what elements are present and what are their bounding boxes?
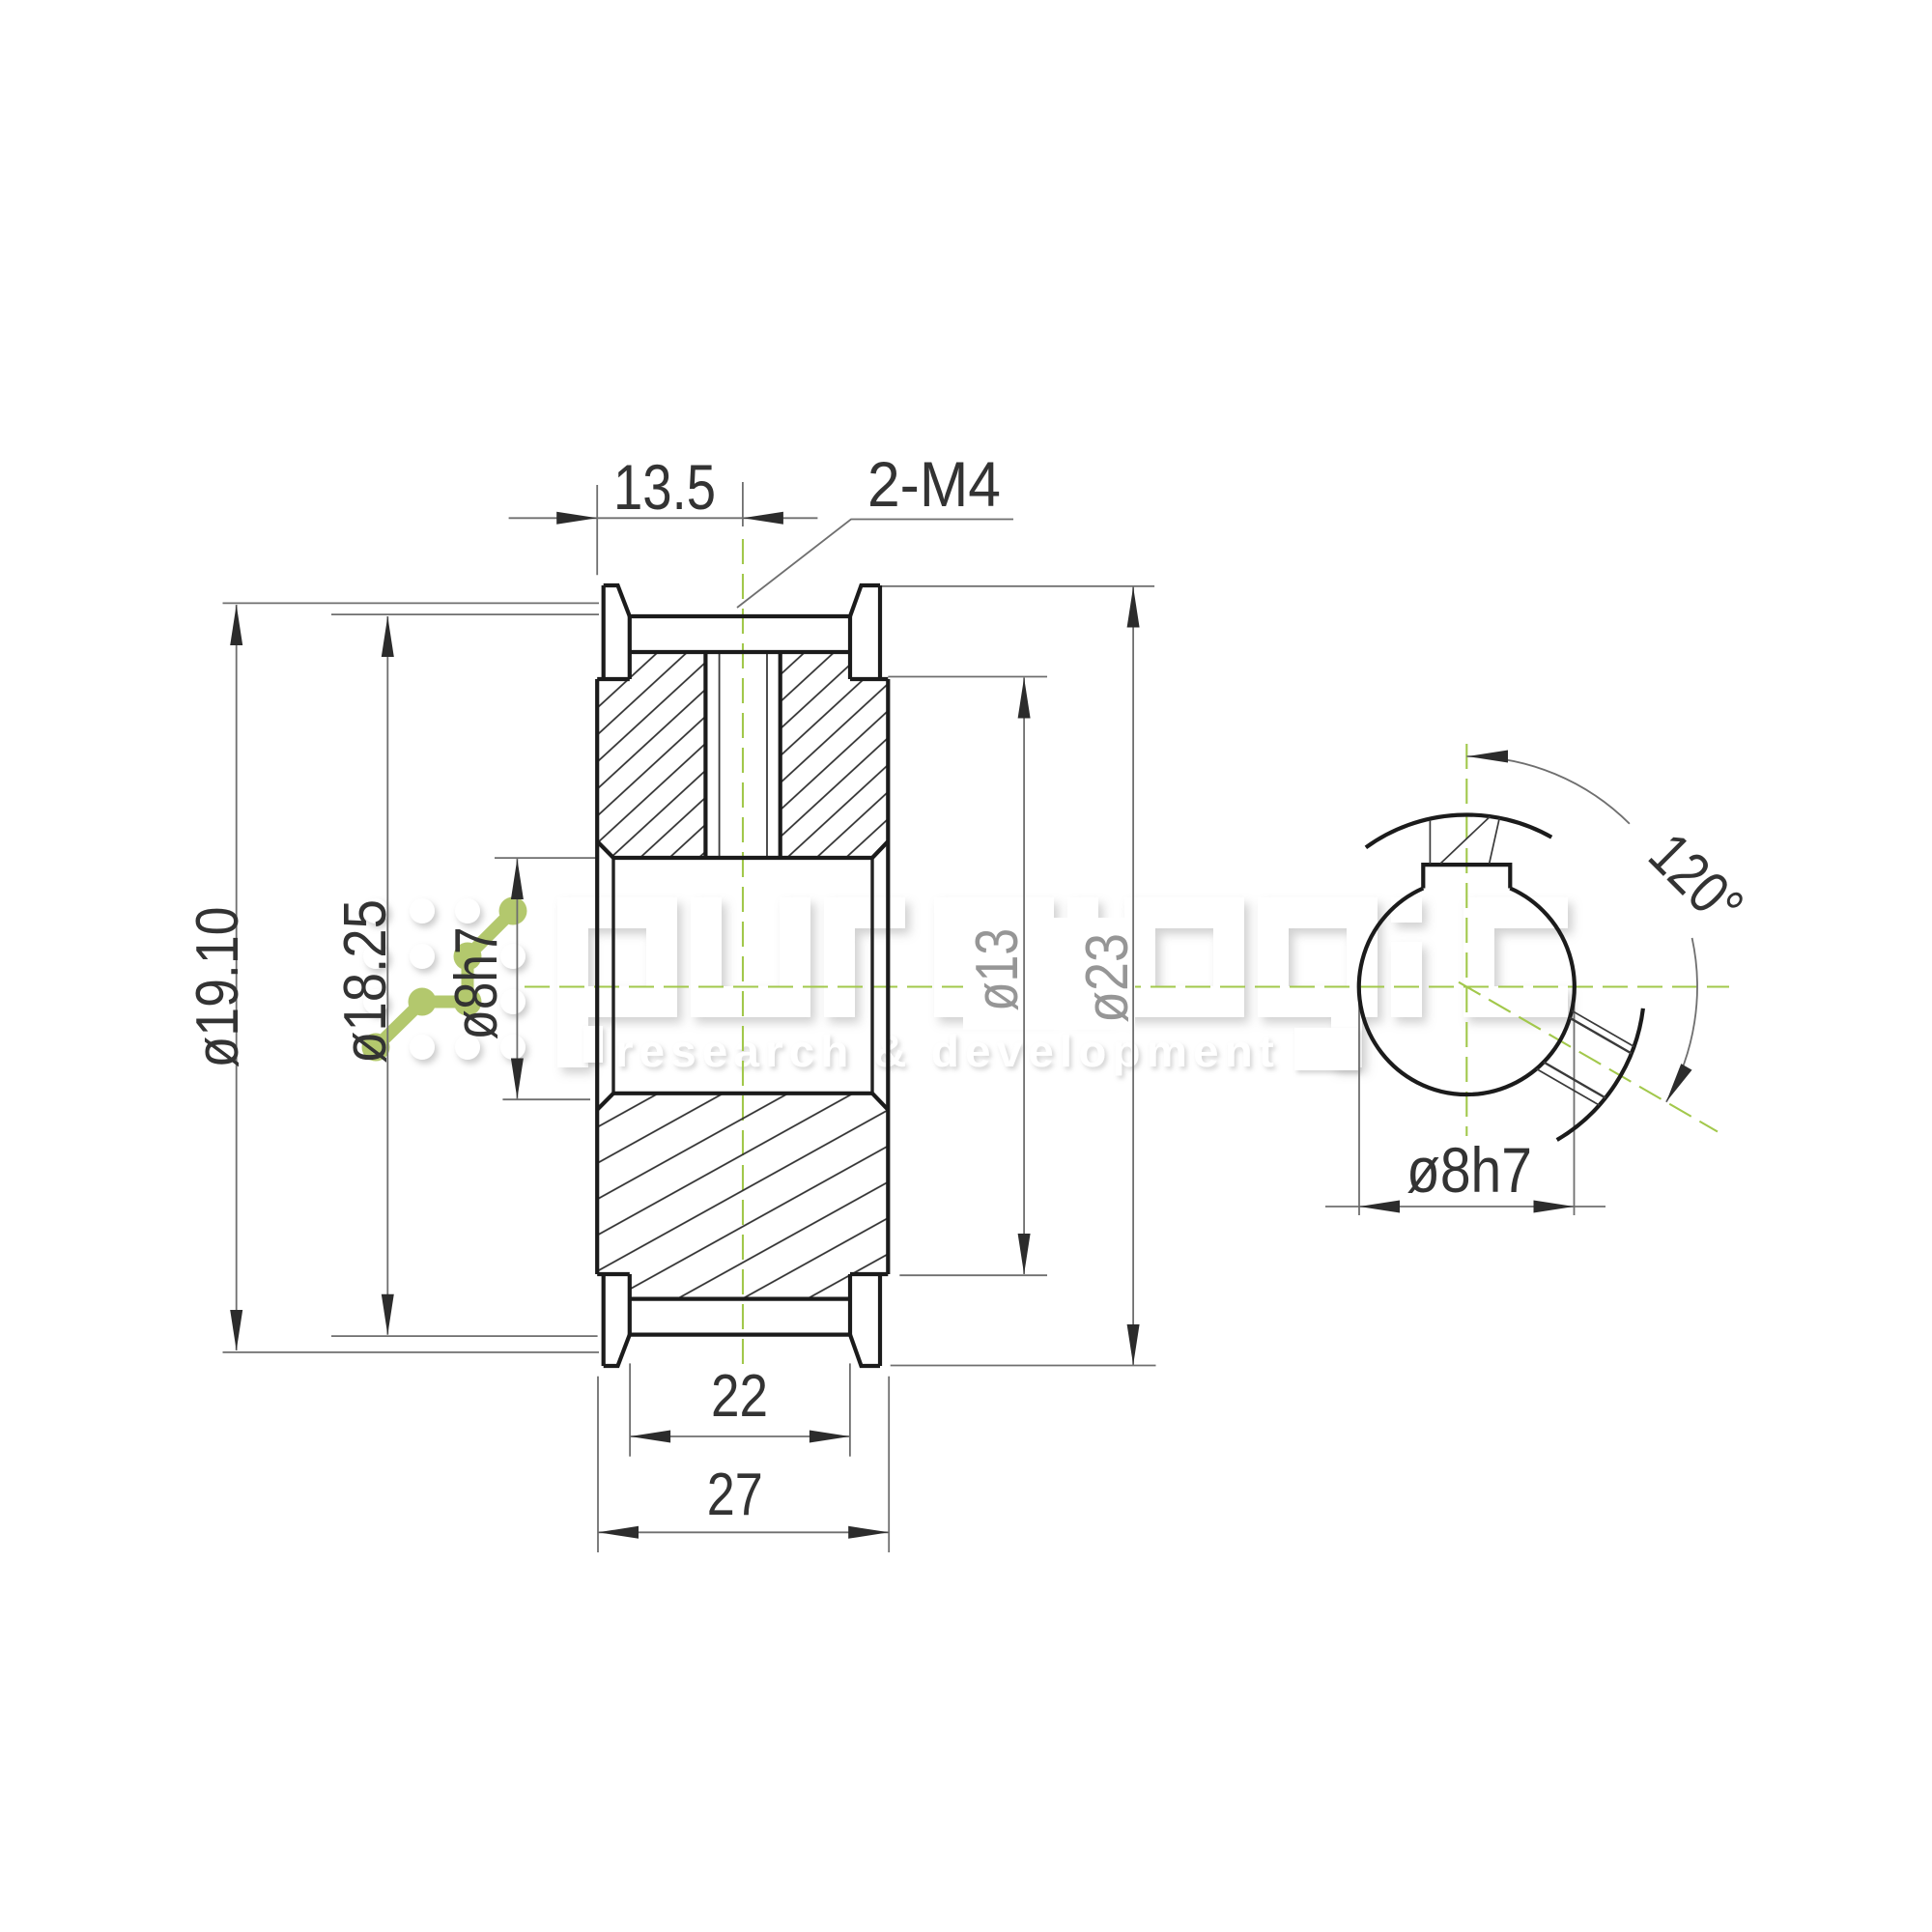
- svg-text:22: 22: [711, 1363, 768, 1430]
- svg-text:13.5: 13.5: [613, 451, 716, 523]
- svg-text:ø18.25: ø18.25: [332, 899, 399, 1064]
- svg-text:ø23: ø23: [1074, 933, 1141, 1023]
- svg-text:27: 27: [707, 1462, 763, 1528]
- svg-text:2-M4: 2-M4: [867, 448, 1001, 520]
- svg-text:ø13: ø13: [964, 928, 1031, 1011]
- svg-text:ø8h7: ø8h7: [1406, 1134, 1532, 1206]
- svg-text:research & development: research & development: [615, 1026, 1280, 1076]
- svg-text:ø19.10: ø19.10: [185, 907, 251, 1068]
- svg-text:ø8h7: ø8h7: [443, 927, 510, 1040]
